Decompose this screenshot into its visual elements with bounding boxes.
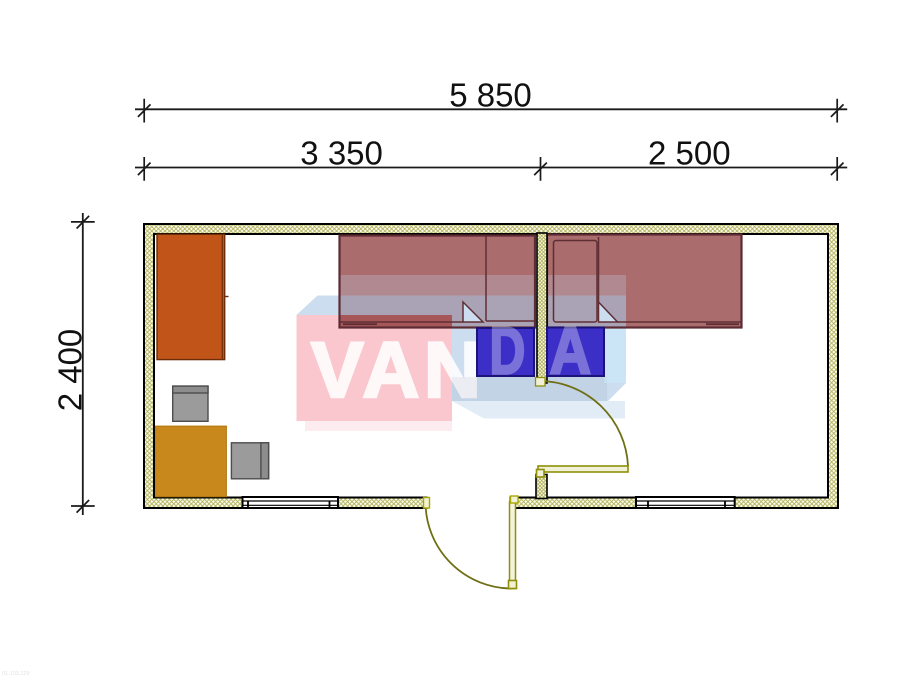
svg-text:2 500: 2 500 bbox=[648, 135, 731, 172]
svg-text:A: A bbox=[550, 313, 592, 388]
svg-text:01.103.129: 01.103.129 bbox=[2, 671, 30, 677]
svg-text:2 400: 2 400 bbox=[52, 329, 89, 412]
svg-text:3 350: 3 350 bbox=[300, 135, 383, 172]
svg-text:D: D bbox=[490, 314, 526, 388]
svg-text:5 850: 5 850 bbox=[449, 77, 532, 114]
